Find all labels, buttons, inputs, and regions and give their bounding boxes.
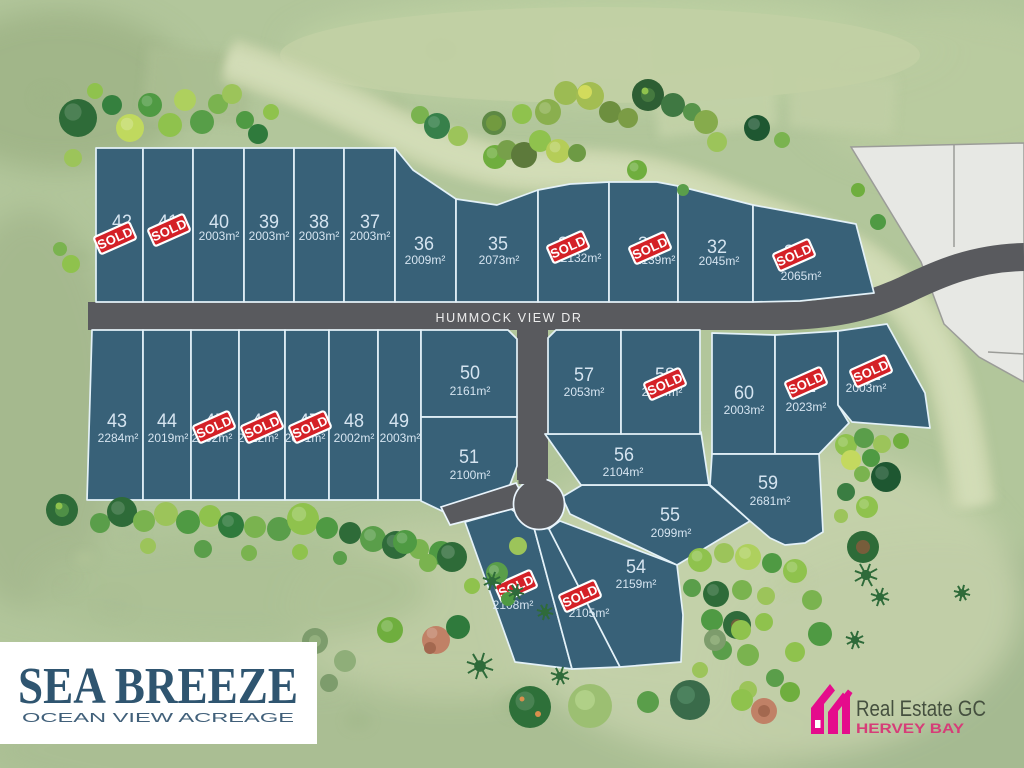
svg-text:2023m²: 2023m² [786,400,827,414]
svg-text:2161m²: 2161m² [450,384,491,398]
svg-text:Real Estate GC: Real Estate GC [856,696,986,721]
svg-text:2065m²: 2065m² [781,269,822,283]
svg-text:44: 44 [157,410,177,432]
svg-text:HERVEY BAY: HERVEY BAY [856,721,964,736]
svg-text:2100m²: 2100m² [450,468,491,482]
svg-text:2003m²: 2003m² [724,403,765,417]
svg-text:OCEAN VIEW ACREAGE: OCEAN VIEW ACREAGE [22,711,294,725]
svg-text:2003m²: 2003m² [199,229,240,243]
svg-text:60: 60 [734,382,754,404]
svg-text:2019m²: 2019m² [148,431,189,445]
svg-text:48: 48 [344,410,364,432]
svg-text:2003m²: 2003m² [350,229,391,243]
svg-text:2073m²: 2073m² [479,253,520,267]
svg-text:54: 54 [626,556,646,578]
svg-text:36: 36 [414,233,434,255]
svg-text:49: 49 [389,410,409,432]
svg-text:SEA BREEZE: SEA BREEZE [18,658,298,715]
svg-text:2009m²: 2009m² [405,253,446,267]
svg-text:2053m²: 2053m² [564,385,605,399]
svg-text:2099m²: 2099m² [651,526,692,540]
svg-text:43: 43 [107,410,127,432]
svg-text:2002m²: 2002m² [334,431,375,445]
svg-text:55: 55 [660,504,680,526]
svg-text:2284m²: 2284m² [98,431,139,445]
svg-text:HUMMOCK VIEW DR: HUMMOCK VIEW DR [436,311,583,325]
svg-text:2104m²: 2104m² [603,465,644,479]
svg-text:2681m²: 2681m² [750,494,791,508]
svg-text:57: 57 [574,364,594,386]
svg-text:2003m²: 2003m² [299,229,340,243]
svg-text:2045m²: 2045m² [699,254,740,268]
svg-text:2003m²: 2003m² [249,229,290,243]
svg-text:50: 50 [460,362,480,384]
svg-text:2159m²: 2159m² [616,577,657,591]
svg-text:35: 35 [488,233,508,255]
svg-text:51: 51 [459,446,479,468]
svg-text:59: 59 [758,472,778,494]
svg-text:2003m²: 2003m² [380,431,421,445]
svg-text:56: 56 [614,444,634,466]
